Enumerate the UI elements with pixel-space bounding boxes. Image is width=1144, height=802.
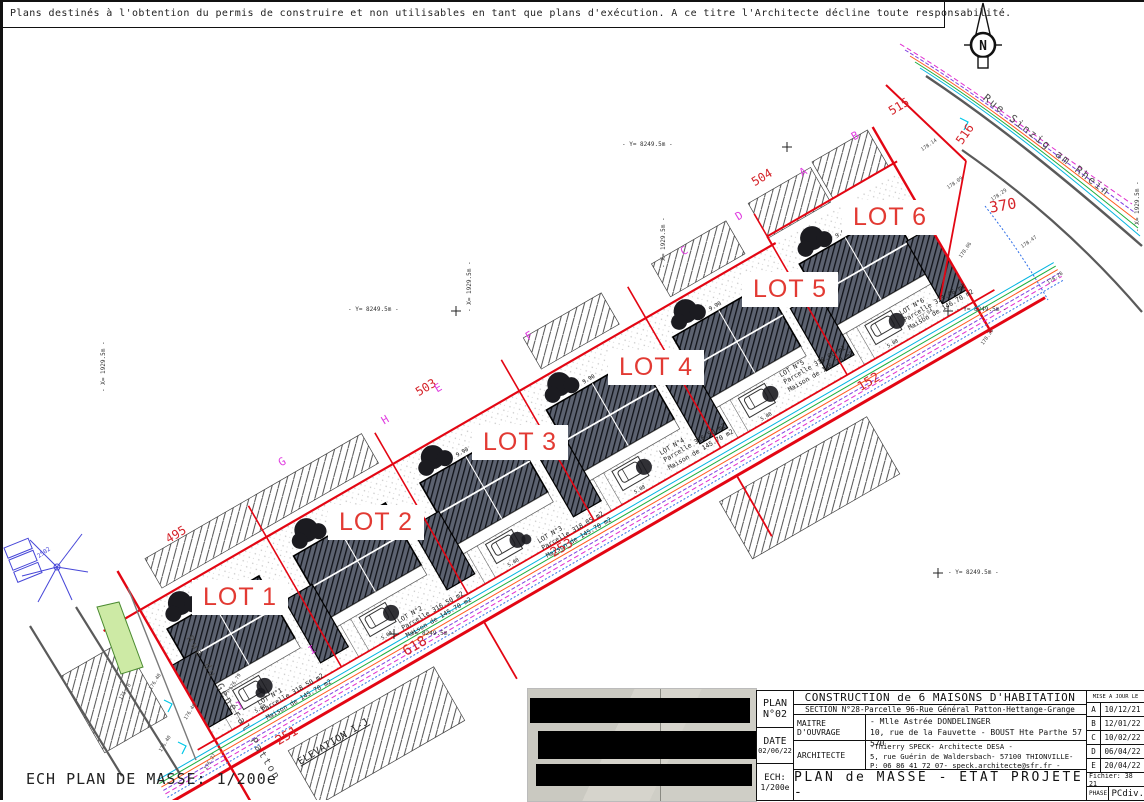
revision-row: A 10/12/21 bbox=[1087, 703, 1144, 717]
lot-2-label: LOT 2 bbox=[328, 505, 424, 540]
architecte-label: ARCHITECTE bbox=[794, 741, 866, 769]
revision-row: D 06/04/22 bbox=[1087, 745, 1144, 759]
revision-date: 10/02/22 bbox=[1101, 733, 1144, 742]
survey-station-icon bbox=[4, 534, 88, 602]
project-title: CONSTRUCTION de 6 MAISONS D'HABITATION bbox=[794, 691, 1086, 705]
architecte-content: -Thierry SPECK- Architecte DESA - 5, rue… bbox=[866, 741, 1086, 769]
redaction-bar bbox=[536, 764, 752, 786]
architecte-line2: 5, rue Guérin de Waldersbach- 57100 THIO… bbox=[870, 752, 1086, 762]
disclaimer-text: Plans destinés à l'obtention du permis d… bbox=[0, 0, 945, 28]
revision-date: 12/01/22 bbox=[1101, 719, 1144, 728]
revision-row: B 12/01/22 bbox=[1087, 717, 1144, 731]
date-label: DATE bbox=[764, 736, 787, 747]
revision-letter: E bbox=[1087, 759, 1101, 772]
plan-number: N°02 bbox=[763, 709, 787, 720]
file-reference: Fichier: 38 21 bbox=[1087, 773, 1144, 787]
maitre-row: MAITRE D'OUVRAGE - Mlle Astrée DONDELING… bbox=[794, 715, 1086, 741]
lot-1-label: LOT 1 bbox=[192, 580, 288, 615]
maitre-label: MAITRE D'OUVRAGE bbox=[794, 715, 866, 740]
grid-y-label: - Y= 8249.5m - bbox=[956, 306, 1007, 313]
title-block-revisions: MISE A JOUR LE A 10/12/21 B 12/01/22 C 1… bbox=[1086, 691, 1144, 800]
lot-4-label: LOT 4 bbox=[608, 350, 704, 385]
phase-row: PHASE PCdiv. bbox=[1087, 787, 1144, 800]
sheet-top-edge bbox=[0, 0, 1144, 2]
revision-date: 20/04/22 bbox=[1101, 761, 1144, 770]
ech-value: 1/200e bbox=[761, 783, 790, 792]
redaction-bar bbox=[530, 698, 750, 723]
grid-x-label: - X= 1929.5m - bbox=[100, 341, 107, 392]
plan-label: PLAN bbox=[763, 698, 787, 709]
lot-3-label: LOT 3 bbox=[472, 425, 568, 460]
grid-y-label: - Y= 8249.5m - bbox=[348, 306, 399, 313]
redaction-bar bbox=[538, 731, 756, 759]
grid-x-label: - X= 1929.5m - bbox=[466, 261, 473, 312]
revision-letter: C bbox=[1087, 731, 1101, 744]
grid-x-label: - X= 1929.5m - bbox=[1134, 181, 1141, 232]
title-block: PLAN N°02 DATE 02/06/22 ECH: 1/200e CONS… bbox=[756, 690, 1144, 801]
sheet-left-edge bbox=[0, 0, 3, 800]
phase-value: PCdiv. bbox=[1108, 787, 1144, 800]
site-photos bbox=[527, 688, 757, 802]
grid-y-label: - Y= 8249.5m - bbox=[404, 630, 455, 637]
revision-letter: A bbox=[1087, 703, 1101, 716]
document-title: PLAN de MASSE - ETAT PROJETE - bbox=[794, 770, 1086, 800]
ech-label: ECH: bbox=[764, 773, 786, 783]
site-plan-sheet: { "disclaimer": "Plans destinés à l'obte… bbox=[0, 0, 1144, 800]
maitre-content: - Mlle Astrée DONDELINGER 10, rue de la … bbox=[866, 715, 1086, 740]
architecte-line1: -Thierry SPECK- Architecte DESA - bbox=[870, 742, 1086, 752]
revision-letter: B bbox=[1087, 717, 1101, 730]
title-block-left: PLAN N°02 DATE 02/06/22 ECH: 1/200e bbox=[757, 691, 794, 800]
revision-letter: D bbox=[1087, 745, 1101, 758]
maitre-line1: - Mlle Astrée DONDELINGER bbox=[870, 716, 1086, 727]
title-block-middle: CONSTRUCTION de 6 MAISONS D'HABITATION S… bbox=[794, 691, 1086, 800]
scale-note: ECH PLAN DE MASSE: 1/200e bbox=[26, 770, 277, 788]
lot-6-label: LOT 6 bbox=[842, 200, 938, 235]
lot-5-label: LOT 5 bbox=[742, 272, 838, 307]
scale-cell: ECH: 1/200e bbox=[757, 764, 793, 800]
date-value: 02/06/22 bbox=[758, 747, 792, 755]
revisions-header: MISE A JOUR LE bbox=[1087, 691, 1144, 703]
plan-linework: 9.90 5.08 9.90 5.08 bbox=[0, 0, 1144, 800]
north-letter: N bbox=[979, 39, 987, 54]
plan-number-cell: PLAN N°02 bbox=[757, 691, 793, 728]
project-subtitle: SECTION N°28-Parcelle 96-Rue Général Pat… bbox=[794, 705, 1086, 715]
grid-y-label: - Y= 8249.5m - bbox=[948, 569, 999, 576]
grid-x-label: - X= 1929.5m - bbox=[660, 217, 667, 268]
grid-y-label: - Y= 8249.5m - bbox=[622, 141, 673, 148]
revision-date: 06/04/22 bbox=[1101, 747, 1144, 756]
date-cell: DATE 02/06/22 bbox=[757, 728, 793, 765]
revision-date: 10/12/21 bbox=[1101, 705, 1144, 714]
phase-label: PHASE bbox=[1087, 790, 1108, 797]
revision-row: C 10/02/22 bbox=[1087, 731, 1144, 745]
architecte-row: ARCHITECTE -Thierry SPECK- Architecte DE… bbox=[794, 741, 1086, 770]
